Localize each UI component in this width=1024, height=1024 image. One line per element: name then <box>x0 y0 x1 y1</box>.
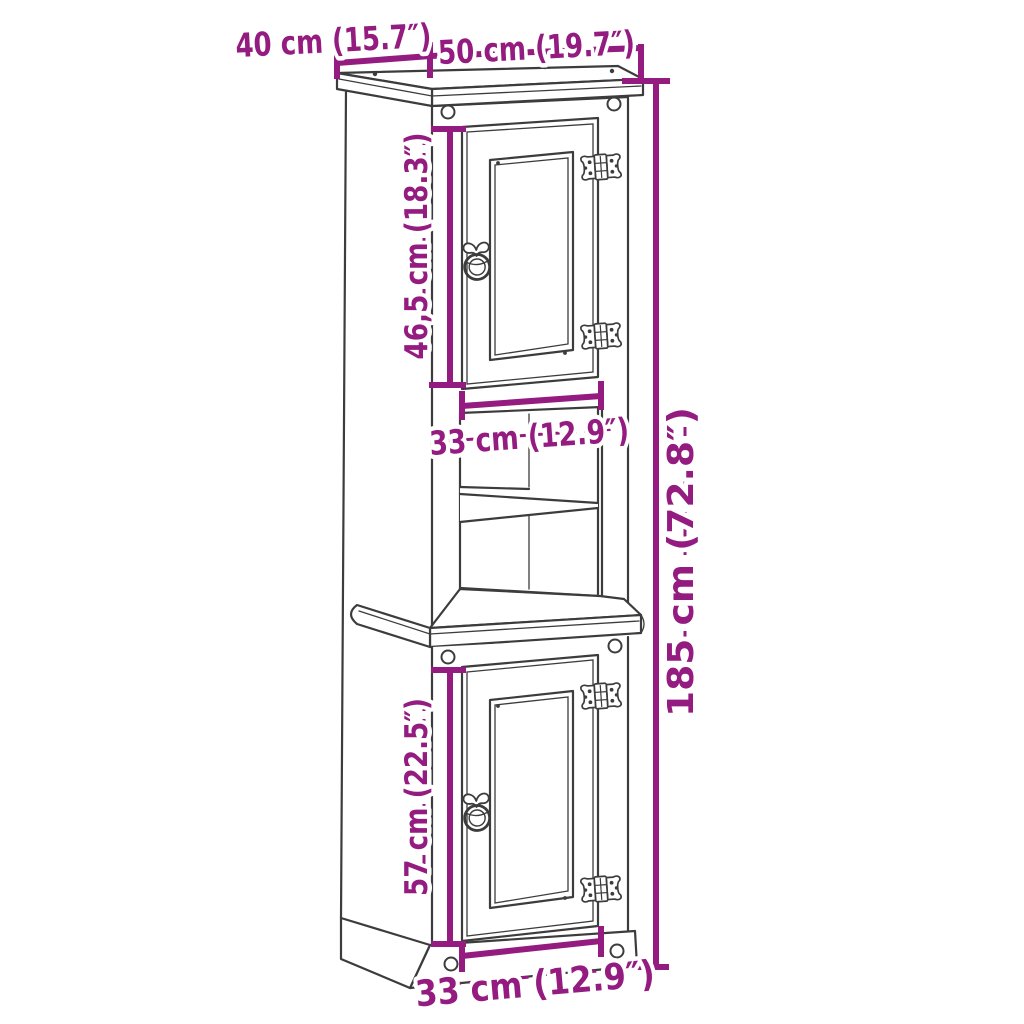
peg-dot <box>496 161 500 165</box>
peg <box>442 106 455 119</box>
cabinet-dimension-drawing: 40 cm (15.7″) 50 cm (19.7″) 185 cm (72.8… <box>0 0 1024 1024</box>
hinge-lower-door-bottom <box>581 875 622 903</box>
hinge-upper-door-top <box>581 153 622 181</box>
upper-door <box>462 118 621 389</box>
cabinet-drawing <box>337 65 644 988</box>
peg-dot <box>373 72 377 76</box>
peg <box>442 651 455 664</box>
dimension-total-height: 185 cm (72.8″) <box>622 81 702 967</box>
furniture-dimension-diagram: 40 cm (15.7″) 50 cm (19.7″) 185 cm (72.8… <box>0 0 1024 1024</box>
peg-dot <box>563 896 567 900</box>
peg-dot <box>563 351 567 355</box>
dimension-label-top-width: 50 cm (19.7″) <box>437 23 636 72</box>
lower-door <box>462 655 621 941</box>
hinge-lower-door-top <box>581 682 622 710</box>
dimension-label-total-height: 185 cm (72.8″) <box>661 407 702 717</box>
dimension-top-depth: 40 cm (15.7″) <box>235 16 433 79</box>
peg <box>445 958 458 971</box>
dimension-label-upper-door-height: 46,5 cm (18.3″) <box>399 133 435 360</box>
peg-dot <box>610 69 614 73</box>
hinge-upper-door-bottom <box>581 322 622 350</box>
dimension-label-lower-door-height: 57 cm (22.5″) <box>399 698 435 896</box>
peg <box>608 98 621 111</box>
peg <box>609 640 622 653</box>
peg-dot <box>496 704 500 708</box>
